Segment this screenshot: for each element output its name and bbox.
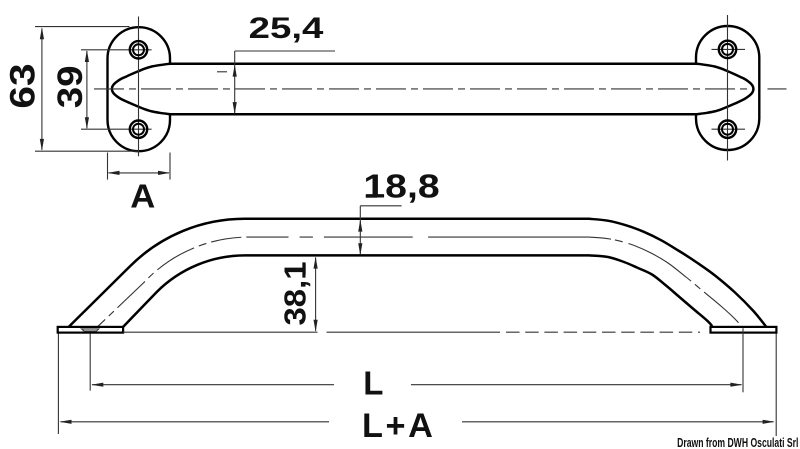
svg-text:39: 39 — [51, 65, 90, 108]
svg-text:L: L — [363, 365, 383, 402]
svg-text:L+A: L+A — [362, 407, 436, 445]
svg-text:38,1: 38,1 — [277, 262, 312, 326]
svg-text:63: 63 — [4, 63, 43, 108]
svg-text:25,4: 25,4 — [249, 12, 324, 45]
svg-text:18,8: 18,8 — [363, 167, 439, 205]
svg-text:Drawn from DWH Osculati Srl: Drawn from DWH Osculati Srl — [677, 436, 798, 449]
svg-text:A: A — [130, 178, 155, 215]
